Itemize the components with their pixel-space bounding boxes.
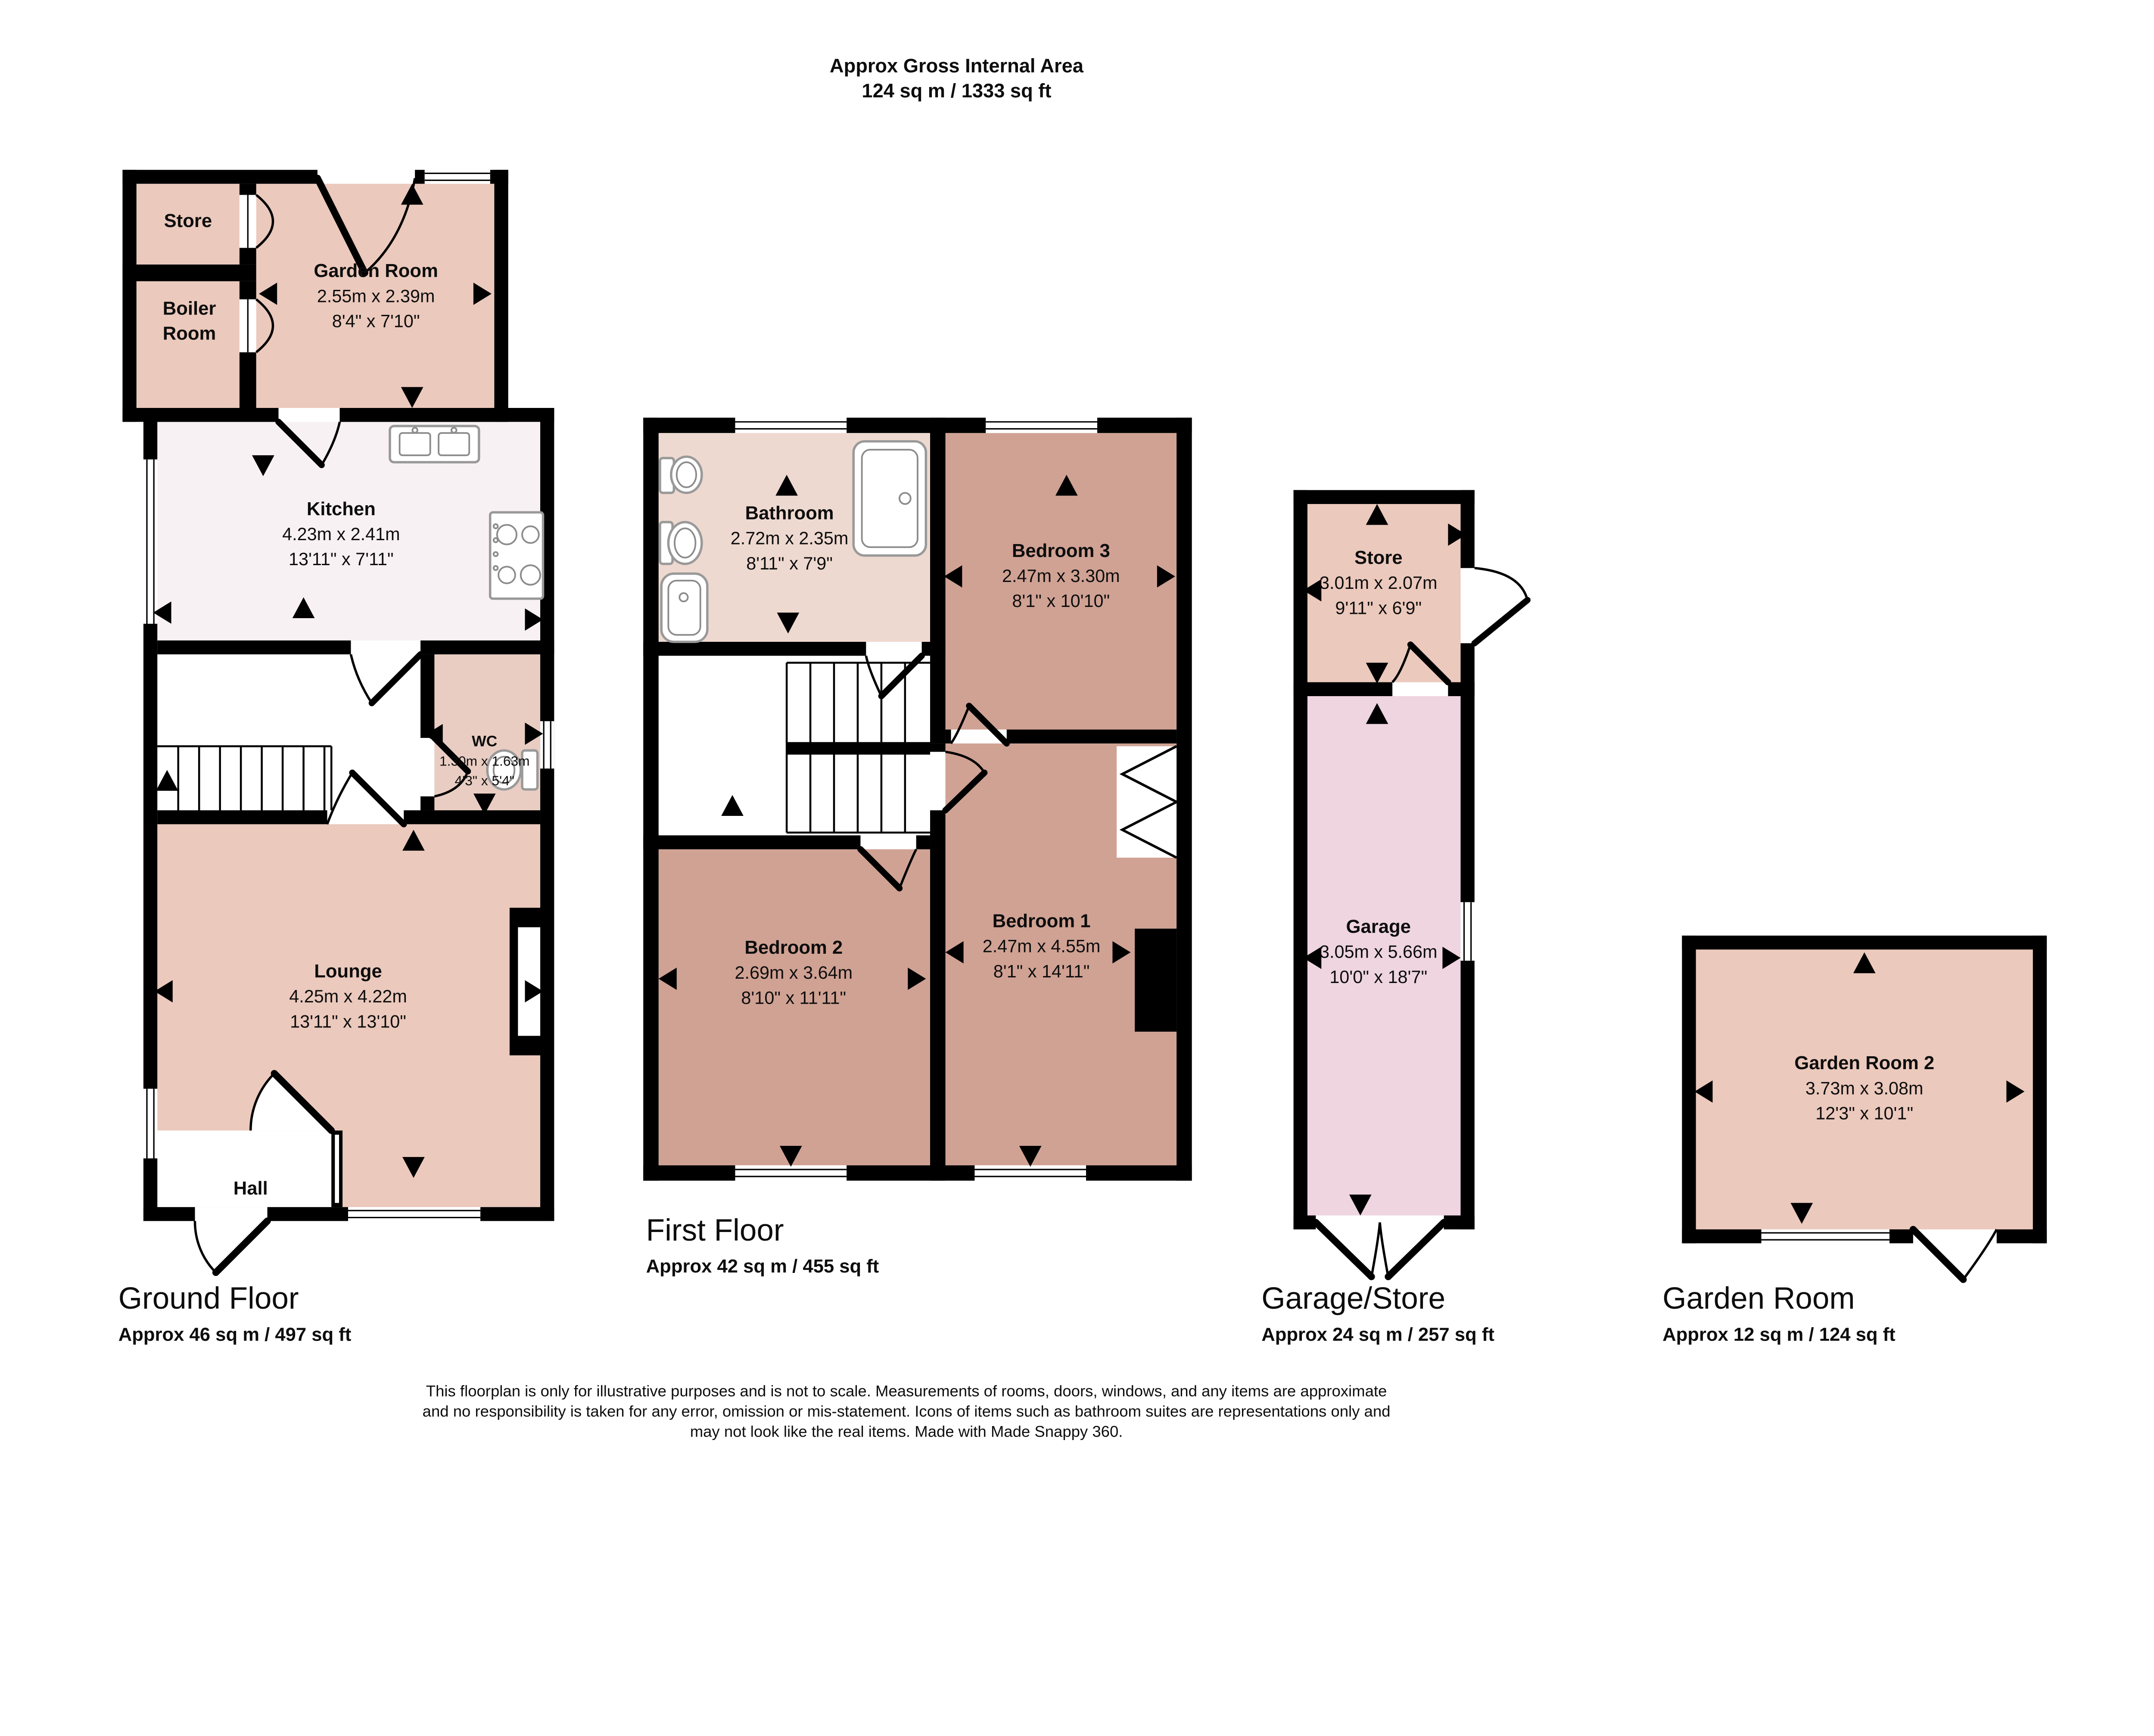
wc-metric: 1.30m x 1.63m bbox=[439, 753, 529, 769]
ground-floor-title: Ground Floor bbox=[118, 1282, 299, 1316]
bathtub-icon bbox=[661, 574, 707, 642]
bedroom1-label: Bedroom 1 bbox=[993, 911, 1091, 932]
toilet-icon bbox=[660, 457, 702, 493]
window bbox=[1762, 1229, 1889, 1243]
garden-room2-label: Garden Room 2 bbox=[1794, 1053, 1934, 1073]
kitchen-metric: 4.23m x 2.41m bbox=[282, 524, 400, 544]
door-arc bbox=[1913, 1229, 1997, 1279]
window bbox=[1460, 902, 1474, 961]
garage-store-title: Garage/Store bbox=[1261, 1282, 1445, 1316]
bedroom3-metric: 2.47m x 3.30m bbox=[1002, 566, 1120, 586]
lounge-label: Lounge bbox=[314, 961, 382, 982]
bedroom1-imperial: 8'1" x 14'11" bbox=[993, 961, 1090, 981]
double-door-arc bbox=[1316, 1223, 1444, 1277]
garage-store-fill bbox=[1307, 504, 1461, 682]
header-line1: Approx Gross Internal Area bbox=[830, 55, 1084, 77]
wc-label: WC bbox=[472, 732, 497, 750]
kitchen-imperial: 13'11" x 7'11" bbox=[289, 549, 394, 569]
store-room-label: Store bbox=[164, 211, 212, 231]
garage-store-label: Store bbox=[1354, 548, 1403, 568]
sink-icon bbox=[660, 522, 702, 564]
stair-hall-fill bbox=[157, 654, 420, 810]
bathroom-metric: 2.72m x 2.35m bbox=[731, 529, 849, 548]
chimney-breast bbox=[1135, 929, 1177, 1032]
hall-label: Hall bbox=[233, 1178, 268, 1199]
garden-room2-metric: 3.73m x 3.08m bbox=[1805, 1078, 1924, 1098]
window bbox=[735, 1165, 847, 1181]
window bbox=[348, 1207, 480, 1221]
door-arc bbox=[1475, 568, 1528, 644]
garage-store-metric: 3.01m x 2.07m bbox=[1320, 573, 1438, 593]
first-floor-plan: Bathroom 2.72m x 2.35m 8'11" x 7'9" Bedr… bbox=[643, 418, 1192, 1277]
garage-metric: 3.05m x 5.66m bbox=[1320, 942, 1438, 962]
lounge-imperial: 13'11" x 13'10" bbox=[290, 1011, 406, 1031]
window bbox=[540, 721, 554, 768]
garden-room2-imperial: 12'3" x 10'1" bbox=[1815, 1104, 1913, 1123]
shower-icon bbox=[853, 442, 926, 556]
boiler-room-label-line2: Room bbox=[163, 324, 216, 344]
garden-room-title: Garden Room bbox=[1662, 1282, 1855, 1316]
garage-store-plan: Store 3.01m x 2.07m 9'11" x 6'9" Garage … bbox=[1261, 490, 1527, 1345]
bedroom3-label: Bedroom 3 bbox=[1012, 541, 1110, 561]
bedroom1-metric: 2.47m x 4.55m bbox=[983, 936, 1101, 956]
footer-line3: may not look like the real items. Made w… bbox=[690, 1422, 1123, 1440]
garden-room-imperial: 8'4" x 7'10" bbox=[332, 311, 420, 331]
garage-label: Garage bbox=[1346, 916, 1411, 937]
first-floor-area: Approx 42 sq m / 455 sq ft bbox=[646, 1256, 879, 1277]
bathroom-label: Bathroom bbox=[745, 503, 834, 524]
wc-imperial: 4'3" x 5'4" bbox=[455, 773, 514, 788]
garden-room-plan: Garden Room 2 3.73m x 3.08m 12'3" x 10'1… bbox=[1662, 936, 2047, 1345]
window bbox=[735, 418, 847, 433]
front-door-arc bbox=[195, 1221, 267, 1273]
kitchen-label: Kitchen bbox=[307, 499, 376, 520]
garage-imperial: 10'0" x 18'7" bbox=[1329, 967, 1427, 987]
garage-store-imperial: 9'11" x 6'9" bbox=[1335, 598, 1422, 618]
bedroom2-imperial: 8'10" x 11'11" bbox=[741, 988, 846, 1008]
window bbox=[986, 418, 1097, 433]
header: Approx Gross Internal Area 124 sq m / 13… bbox=[830, 55, 1084, 102]
garden-room-area: Approx 12 sq m / 124 sq ft bbox=[1662, 1324, 1896, 1345]
boiler-room-label-line1: Boiler bbox=[163, 298, 216, 319]
ground-floor-plan: Store Boiler Room Garden Room 2.55m x 2.… bbox=[118, 170, 554, 1345]
header-line2: 124 sq m / 1333 sq ft bbox=[862, 80, 1051, 102]
bedroom3-imperial: 8'1" x 10'10" bbox=[1012, 591, 1110, 611]
floorplan-canvas: Approx Gross Internal Area 124 sq m / 13… bbox=[0, 0, 2154, 1470]
window bbox=[143, 460, 157, 624]
garage-store-area: Approx 24 sq m / 257 sq ft bbox=[1261, 1324, 1494, 1345]
garden-room-label: Garden Room bbox=[314, 261, 438, 281]
window bbox=[974, 1165, 1086, 1181]
footer-line1: This floorplan is only for illustrative … bbox=[426, 1382, 1387, 1400]
footer-disclaimer: This floorplan is only for illustrative … bbox=[423, 1382, 1391, 1440]
window bbox=[425, 170, 490, 184]
lounge-metric: 4.25m x 4.22m bbox=[289, 986, 407, 1006]
bedroom2-label: Bedroom 2 bbox=[744, 937, 843, 958]
window bbox=[143, 1089, 157, 1158]
first-floor-title: First Floor bbox=[646, 1213, 784, 1248]
ground-floor-area: Approx 46 sq m / 497 sq ft bbox=[118, 1324, 352, 1345]
footer-line2: and no responsibility is taken for any e… bbox=[423, 1403, 1391, 1420]
bathroom-imperial: 8'11" x 7'9" bbox=[746, 554, 833, 573]
garden-room-metric: 2.55m x 2.39m bbox=[317, 286, 435, 306]
stove-icon bbox=[490, 512, 543, 598]
bedroom2-metric: 2.69m x 3.64m bbox=[735, 963, 853, 983]
kitchen-sink-icon bbox=[390, 426, 479, 462]
